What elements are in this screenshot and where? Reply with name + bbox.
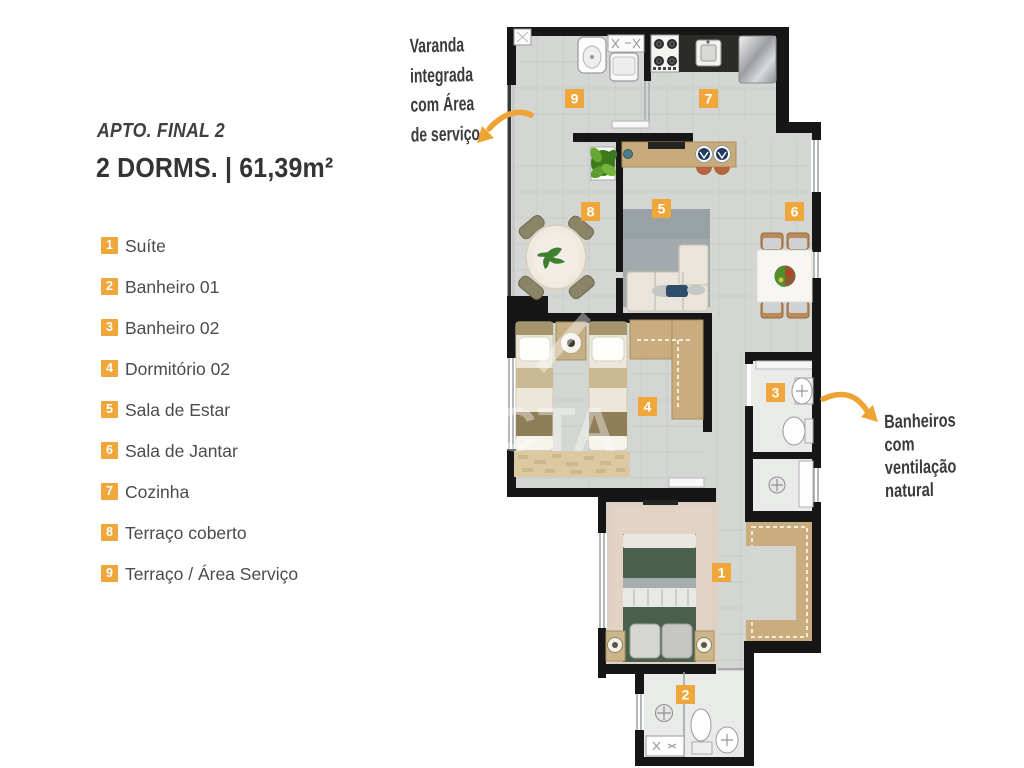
svg-text:5: 5 (658, 201, 666, 217)
svg-text:4: 4 (644, 399, 652, 415)
svg-text:1: 1 (718, 565, 726, 581)
svg-text:3: 3 (772, 385, 780, 401)
svg-text:8: 8 (587, 204, 595, 220)
svg-text:2: 2 (682, 687, 690, 703)
svg-text:6: 6 (791, 204, 799, 220)
svg-text:9: 9 (571, 91, 579, 107)
svg-text:7: 7 (705, 91, 713, 107)
svg-text:CTA: CTA (492, 396, 618, 465)
